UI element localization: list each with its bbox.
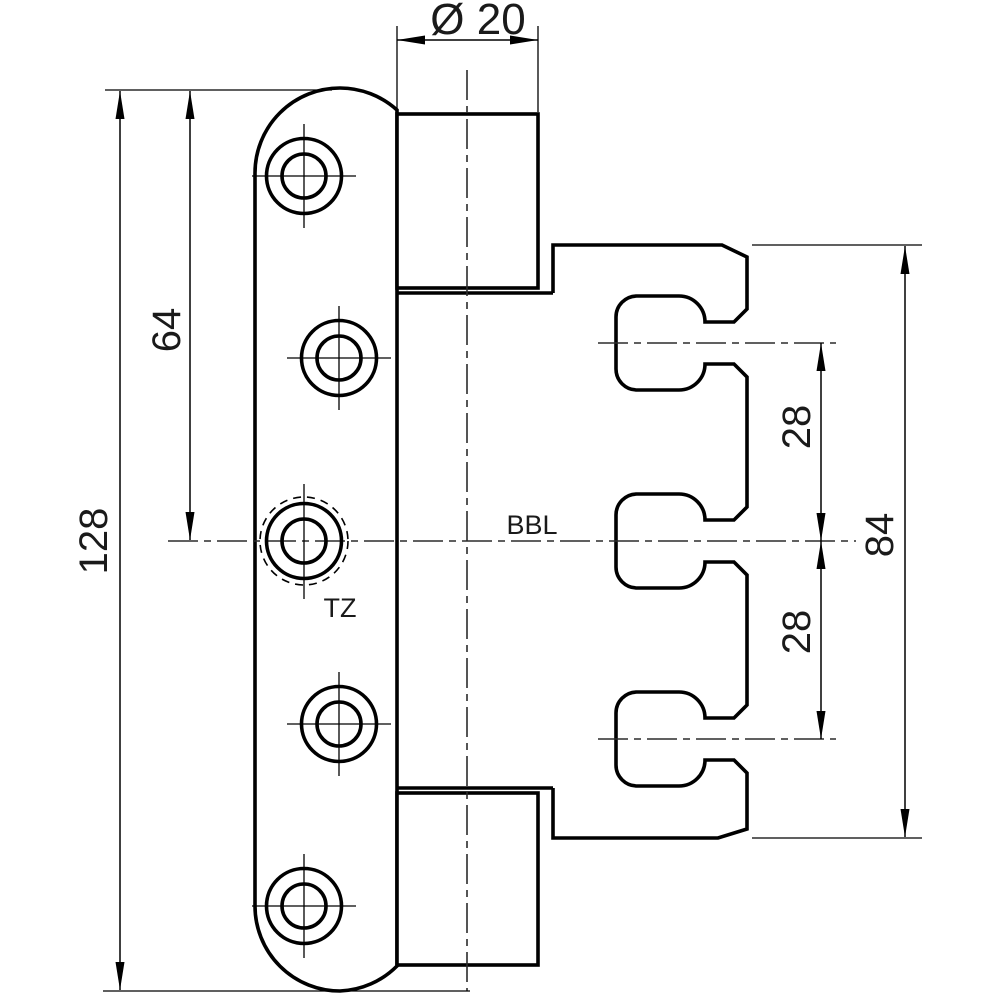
dim-label-slot-pitch-upper: 28 [775,405,819,450]
annotation-tz-load-pin: TZ [324,593,357,623]
annotation-bbl-reference-line: BBL [506,510,557,540]
arrowhead-bottom [186,512,195,540]
arrowhead-top [817,343,826,371]
dimension-leaf-half-length: 64 [145,91,195,540]
arrowhead-top [186,91,195,119]
arrowhead-top [901,246,910,274]
dim-label-total-length: 128 [72,508,116,575]
dim-label-diameter: Ø 20 [430,0,525,44]
arrowhead-bottom [901,809,910,837]
hinge-technical-drawing: Ø 20 128 64 28 28 [0,0,1000,1000]
dim-label-frame-height: 84 [858,513,902,558]
arrowhead-mid-down [817,513,826,541]
dim-label-half-length: 64 [145,308,189,353]
arrowhead-mid-up [817,541,826,569]
arrowhead-left [397,36,425,45]
arrowhead-bottom [116,962,125,990]
arrowhead-bottom [817,711,826,739]
arrowhead-top [116,91,125,119]
drawing-canvas: Ø 20 128 64 28 28 [0,0,1000,1000]
dim-label-slot-pitch-lower: 28 [775,610,819,655]
